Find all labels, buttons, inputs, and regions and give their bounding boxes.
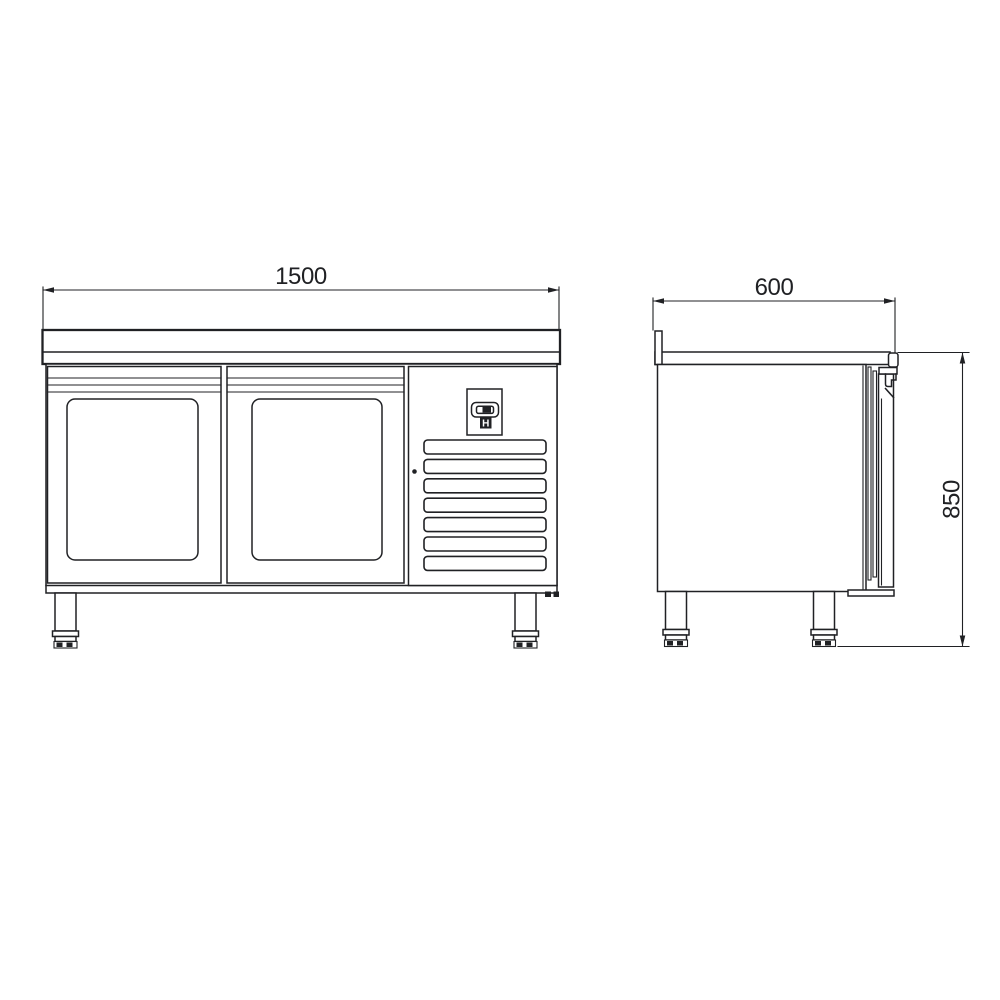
- bottom-bracket-detail-1: [545, 592, 551, 598]
- leg-shaft: [666, 592, 687, 630]
- arrowhead-right: [548, 287, 559, 293]
- leg-cap: [811, 630, 837, 636]
- front-width-dimension: 1500: [43, 263, 559, 329]
- side-depth-label: 600: [755, 274, 794, 301]
- leg-foot-detail-1: [815, 641, 821, 646]
- arrowhead-left: [43, 287, 54, 293]
- leg-shaft: [55, 593, 76, 631]
- vent-slat: [424, 537, 546, 551]
- door-right-panel: [252, 399, 382, 560]
- arrowhead-right: [884, 298, 895, 304]
- door-gasket-strip-2: [873, 371, 877, 577]
- worktop-slab-side: [655, 352, 890, 365]
- door-right: [227, 367, 404, 584]
- technical-drawing-canvas: 1500: [0, 0, 1000, 1000]
- door-side-face: [879, 374, 894, 587]
- cabinet-side-outline: [658, 365, 867, 592]
- vent-slat: [424, 479, 546, 493]
- side-depth-dimension: 600: [653, 274, 895, 352]
- door-handle-cap: [879, 368, 897, 375]
- side-leg-rear: [811, 592, 837, 647]
- leg-foot-detail-2: [527, 643, 533, 648]
- front-width-label: 1500: [275, 263, 327, 290]
- leg-shaft: [515, 593, 536, 631]
- leg-cap: [663, 630, 689, 636]
- door-left-panel: [67, 399, 198, 560]
- leg-foot-detail-2: [67, 643, 73, 648]
- leg-base: [666, 635, 687, 640]
- front-view: 1500: [43, 263, 561, 648]
- cabinet-side: [658, 365, 867, 592]
- leg-base: [55, 637, 76, 642]
- side-height-label: 850: [939, 480, 966, 519]
- thermostat-display-digit-block: [483, 407, 492, 413]
- arrowhead-bottom: [960, 636, 966, 647]
- leg-shaft: [814, 592, 835, 630]
- vent-grille-slats: [424, 440, 546, 570]
- door-left: [48, 367, 222, 584]
- side-view: 600: [653, 274, 969, 647]
- vent-slat: [424, 518, 546, 532]
- arrowhead-left: [653, 298, 664, 304]
- vent-slat: [424, 440, 546, 454]
- controller-badge-label: H: [482, 418, 489, 429]
- leg-cap: [513, 631, 539, 637]
- leg-foot-detail-2: [825, 641, 831, 646]
- vent-slat: [424, 498, 546, 512]
- vent-slat: [424, 556, 546, 570]
- worktop-front: [43, 330, 561, 364]
- door-gasket-strip-1: [868, 367, 871, 580]
- worktop-side: [655, 331, 898, 367]
- door-kick-bar: [848, 590, 894, 596]
- refrigerated-counter-drawing: 1500: [0, 0, 1000, 1000]
- vent-slat: [424, 459, 546, 473]
- leg-cap: [53, 631, 79, 637]
- leg-foot-detail-2: [677, 641, 683, 646]
- lock-screw-dot: [412, 469, 417, 474]
- side-leg-front: [663, 592, 689, 647]
- backsplash: [655, 331, 662, 365]
- control-panel: H: [467, 389, 502, 435]
- leg-foot-detail-1: [517, 643, 523, 648]
- leg-base: [515, 637, 536, 642]
- front-leg-left: [53, 593, 79, 648]
- leg-foot-detail-1: [57, 643, 63, 648]
- leg-base: [814, 635, 835, 640]
- worktop-end-cap: [889, 353, 899, 367]
- bottom-bracket-detail-2: [554, 592, 560, 598]
- worktop-slab: [43, 330, 561, 364]
- front-leg-right: [513, 593, 539, 648]
- leg-foot-detail-1: [667, 641, 673, 646]
- compressor-section: H: [409, 367, 560, 598]
- arrowhead-top: [960, 353, 966, 364]
